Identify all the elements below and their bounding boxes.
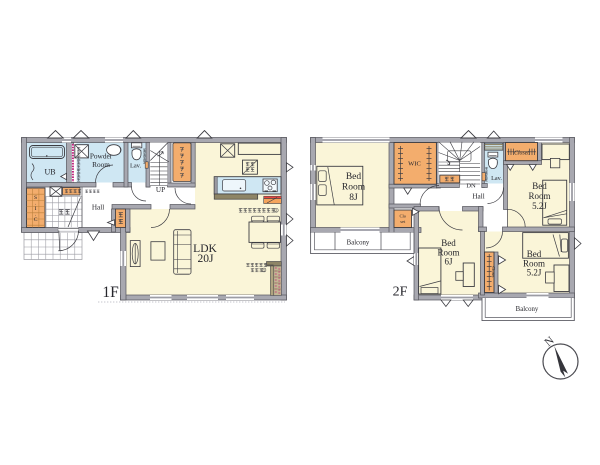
svg-text:Hall: Hall — [472, 193, 484, 201]
svg-text:Lav.: Lav. — [491, 175, 502, 182]
svg-text:Bed: Bed — [532, 181, 547, 191]
svg-text:8J: 8J — [349, 193, 358, 203]
svg-text:N: N — [543, 334, 558, 349]
svg-text:Room: Room — [528, 191, 550, 201]
svg-text:Balcony: Balcony — [516, 306, 539, 313]
svg-text:5.2J: 5.2J — [532, 201, 547, 211]
svg-text:Balcony: Balcony — [347, 240, 370, 247]
svg-text:Closet: Closet — [491, 266, 496, 278]
svg-text:UB: UB — [44, 168, 55, 177]
svg-text:Bed: Bed — [441, 238, 456, 248]
svg-text:20J: 20J — [198, 253, 215, 265]
svg-text:Hall: Hall — [92, 204, 104, 212]
svg-text:UP: UP — [156, 186, 165, 194]
svg-text:6J: 6J — [444, 257, 453, 267]
svg-text:Room: Room — [342, 183, 366, 193]
svg-text:Closet: Closet — [514, 150, 529, 156]
svg-text:DN: DN — [466, 183, 476, 190]
svg-text:5.2J: 5.2J — [527, 268, 542, 278]
svg-text:C: C — [34, 217, 38, 223]
svg-text:WIC: WIC — [408, 161, 421, 168]
svg-text:Clo: Clo — [399, 214, 406, 219]
svg-text:set: set — [400, 219, 406, 224]
svg-text:Bed: Bed — [346, 172, 362, 182]
svg-text:Bed: Bed — [527, 249, 542, 259]
svg-text:1F: 1F — [102, 284, 119, 301]
svg-text:Room: Room — [92, 160, 110, 169]
svg-text:Lav.: Lav. — [130, 163, 142, 170]
svg-text:2F: 2F — [393, 285, 408, 300]
